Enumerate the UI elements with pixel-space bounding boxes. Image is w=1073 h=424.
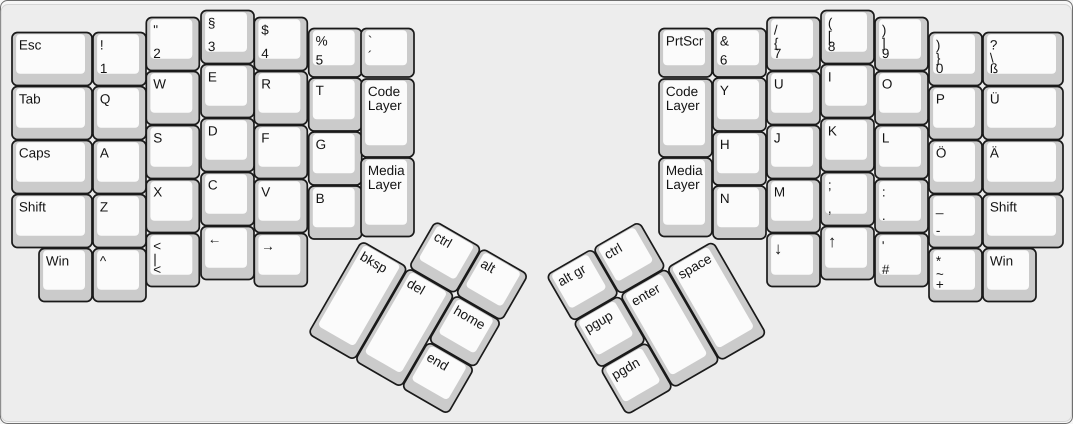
svg-text:Layer: Layer [368,98,402,113]
svg-text:`: ` [368,34,373,49]
svg-text:B: B [316,191,325,206]
svg-text:+: + [936,277,944,292]
svg-text:3: 3 [208,39,216,54]
svg-text:5: 5 [316,53,324,68]
svg-text:L: L [882,131,890,146]
svg-text:T: T [316,83,324,98]
svg-text:Media: Media [368,163,405,178]
svg-text:,: , [828,201,832,216]
svg-text:': ' [882,239,885,254]
svg-text:V: V [261,185,270,200]
svg-text:Tab: Tab [19,92,41,107]
svg-text:Code: Code [666,84,698,99]
svg-text:D: D [208,124,218,139]
svg-text:%: % [316,34,328,49]
svg-text:Shift: Shift [19,200,46,215]
svg-text:J: J [774,131,781,146]
svg-text:$: $ [261,23,269,38]
svg-text:P: P [936,92,945,107]
svg-text:4: 4 [261,46,269,61]
svg-text:R: R [261,77,271,92]
svg-text:9: 9 [882,46,890,61]
svg-text:↓: ↓ [774,239,783,258]
svg-text:Ö: Ö [936,146,947,161]
svg-text:2: 2 [153,46,161,61]
svg-text:Ä: Ä [990,146,999,161]
svg-text:": " [153,23,158,38]
svg-text:-: - [936,223,941,238]
svg-text:Layer: Layer [666,177,700,192]
svg-text:←: ← [208,232,222,247]
svg-text:&: & [720,34,729,49]
svg-text:Win: Win [990,254,1013,269]
svg-text:G: G [316,137,327,152]
svg-text:M: M [774,185,785,200]
svg-text:Code: Code [368,84,400,99]
svg-text:1: 1 [100,61,108,76]
svg-text:A: A [100,146,109,161]
svg-text:F: F [261,131,269,146]
svg-text:N: N [720,191,730,206]
svg-text::: : [882,185,886,200]
svg-text:I: I [828,70,832,85]
svg-text:S: S [153,131,162,146]
svg-text:O: O [882,77,893,92]
svg-text:_: _ [935,200,944,215]
svg-text:Shift: Shift [990,200,1017,215]
svg-text:PrtScr: PrtScr [666,34,704,49]
svg-text:Media: Media [666,163,703,178]
svg-text:Q: Q [100,92,111,107]
svg-text:Y: Y [720,83,729,98]
svg-text:E: E [208,70,217,85]
svg-text:Z: Z [100,200,108,215]
svg-text:W: W [153,77,166,92]
svg-text:6: 6 [720,53,728,68]
svg-text:§: § [208,16,216,31]
svg-text:X: X [153,185,162,200]
svg-text:C: C [208,178,218,193]
svg-text:↑: ↑ [828,232,837,251]
svg-text:Layer: Layer [666,98,700,113]
svg-text:Esc: Esc [19,38,42,53]
svg-text:U: U [774,77,784,92]
svg-text:#: # [882,262,890,277]
svg-text:Win: Win [46,254,69,269]
svg-text:!: ! [100,38,104,53]
svg-text:Caps: Caps [19,146,51,161]
svg-text:7: 7 [774,46,782,61]
svg-text:ß: ß [990,61,998,76]
svg-text:0: 0 [936,61,944,76]
svg-text:^: ^ [100,254,107,269]
svg-text:H: H [720,137,730,152]
svg-text:→: → [261,239,275,254]
svg-text:.: . [882,208,886,223]
svg-text:´: ´ [368,48,373,63]
svg-text:;: ; [828,178,832,193]
svg-text:K: K [828,124,837,139]
svg-text:8: 8 [828,39,836,54]
svg-text:Layer: Layer [368,177,402,192]
svg-text:<: < [153,262,161,277]
svg-text:Ü: Ü [990,92,1000,107]
